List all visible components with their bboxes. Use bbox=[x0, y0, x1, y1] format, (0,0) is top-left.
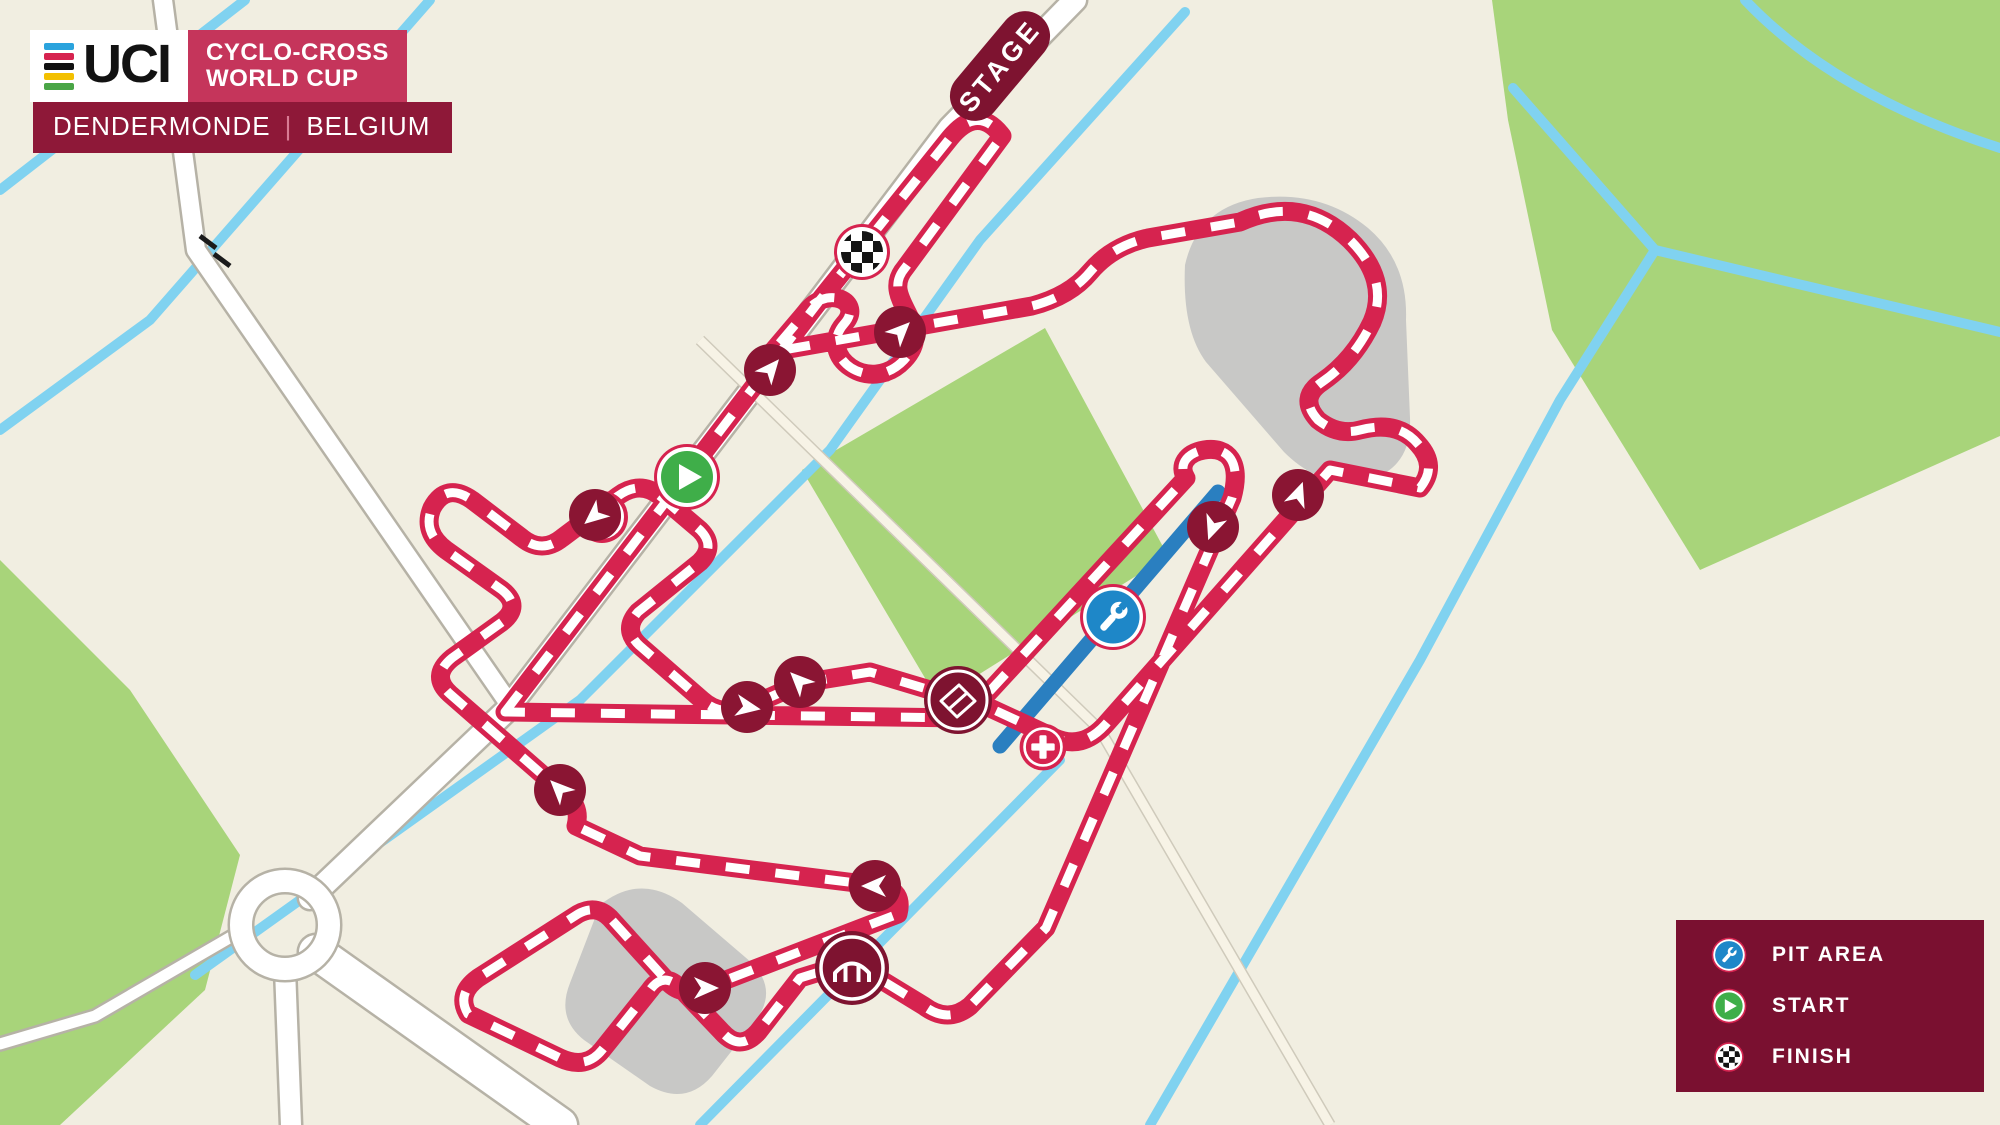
finish-icon bbox=[1708, 1036, 1750, 1078]
first-aid-icon bbox=[1020, 724, 1067, 771]
bridge-obstacle-icon bbox=[815, 931, 889, 1005]
location-separator: | bbox=[285, 111, 293, 142]
pit-area-map-icon bbox=[1080, 584, 1146, 650]
pit-area-icon bbox=[1708, 934, 1750, 976]
legend-label-finish: FINISH bbox=[1772, 1045, 1853, 1069]
legend-row-pit-area: PIT AREA bbox=[1708, 934, 1984, 976]
uci-logo-text: UCI bbox=[83, 37, 170, 95]
direction-arrow-icon bbox=[569, 489, 621, 541]
event-location-bar: DENDERMONDE | BELGIUM bbox=[33, 102, 452, 153]
direction-arrow-icon bbox=[1272, 469, 1324, 521]
direction-arrow-icon bbox=[1187, 501, 1239, 553]
planks-obstacle-icon bbox=[924, 666, 992, 734]
direction-arrow-icon bbox=[721, 681, 773, 733]
direction-arrow-icon bbox=[849, 860, 901, 912]
legend-row-finish: FINISH bbox=[1708, 1036, 1984, 1078]
legend-label-start: START bbox=[1772, 994, 1850, 1018]
finish-map-icon bbox=[834, 224, 890, 280]
event-country: BELGIUM bbox=[306, 111, 430, 142]
direction-arrow-icon bbox=[744, 344, 796, 396]
start-map-icon bbox=[654, 444, 720, 510]
series-title: CYCLO-CROSS WORLD CUP bbox=[188, 30, 407, 102]
direction-arrow-icon bbox=[874, 306, 926, 358]
series-title-line1: CYCLO-CROSS bbox=[206, 40, 389, 66]
series-title-line2: WORLD CUP bbox=[206, 66, 389, 92]
event-city: DENDERMONDE bbox=[53, 111, 271, 142]
start-icon bbox=[1708, 985, 1750, 1027]
map-legend: PIT AREA START FINISH bbox=[1676, 920, 1984, 1092]
legend-label-pit-area: PIT AREA bbox=[1772, 943, 1885, 967]
uci-logo: UCI bbox=[30, 30, 188, 102]
direction-arrow-icon bbox=[774, 656, 826, 708]
direction-arrow-icon bbox=[679, 962, 731, 1014]
direction-arrow-icon bbox=[534, 764, 586, 816]
course-map-page: { "header": { "uci": "UCI", "series_line… bbox=[0, 0, 2000, 1125]
event-header: UCI CYCLO-CROSS WORLD CUP DENDERMONDE | … bbox=[30, 30, 452, 153]
event-header-top-row: UCI CYCLO-CROSS WORLD CUP bbox=[30, 30, 452, 102]
uci-rainbow-stripes-icon bbox=[44, 43, 74, 90]
legend-row-start: START bbox=[1708, 985, 1984, 1027]
